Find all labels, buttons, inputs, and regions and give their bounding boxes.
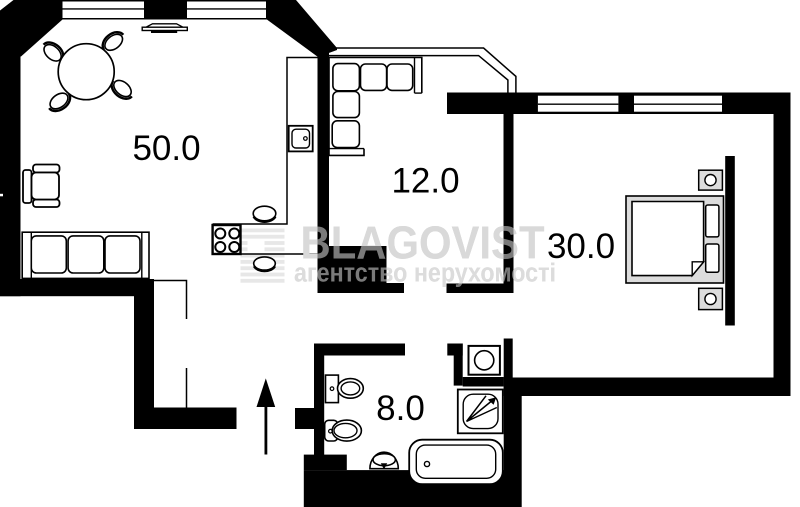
svg-text:30.0: 30.0 [547, 227, 615, 266]
svg-text:агентство нерухомості: агентство нерухомості [294, 260, 556, 288]
svg-text:12.0: 12.0 [391, 162, 459, 201]
svg-text:50.0: 50.0 [132, 129, 200, 168]
svg-text:8.0: 8.0 [376, 389, 425, 428]
